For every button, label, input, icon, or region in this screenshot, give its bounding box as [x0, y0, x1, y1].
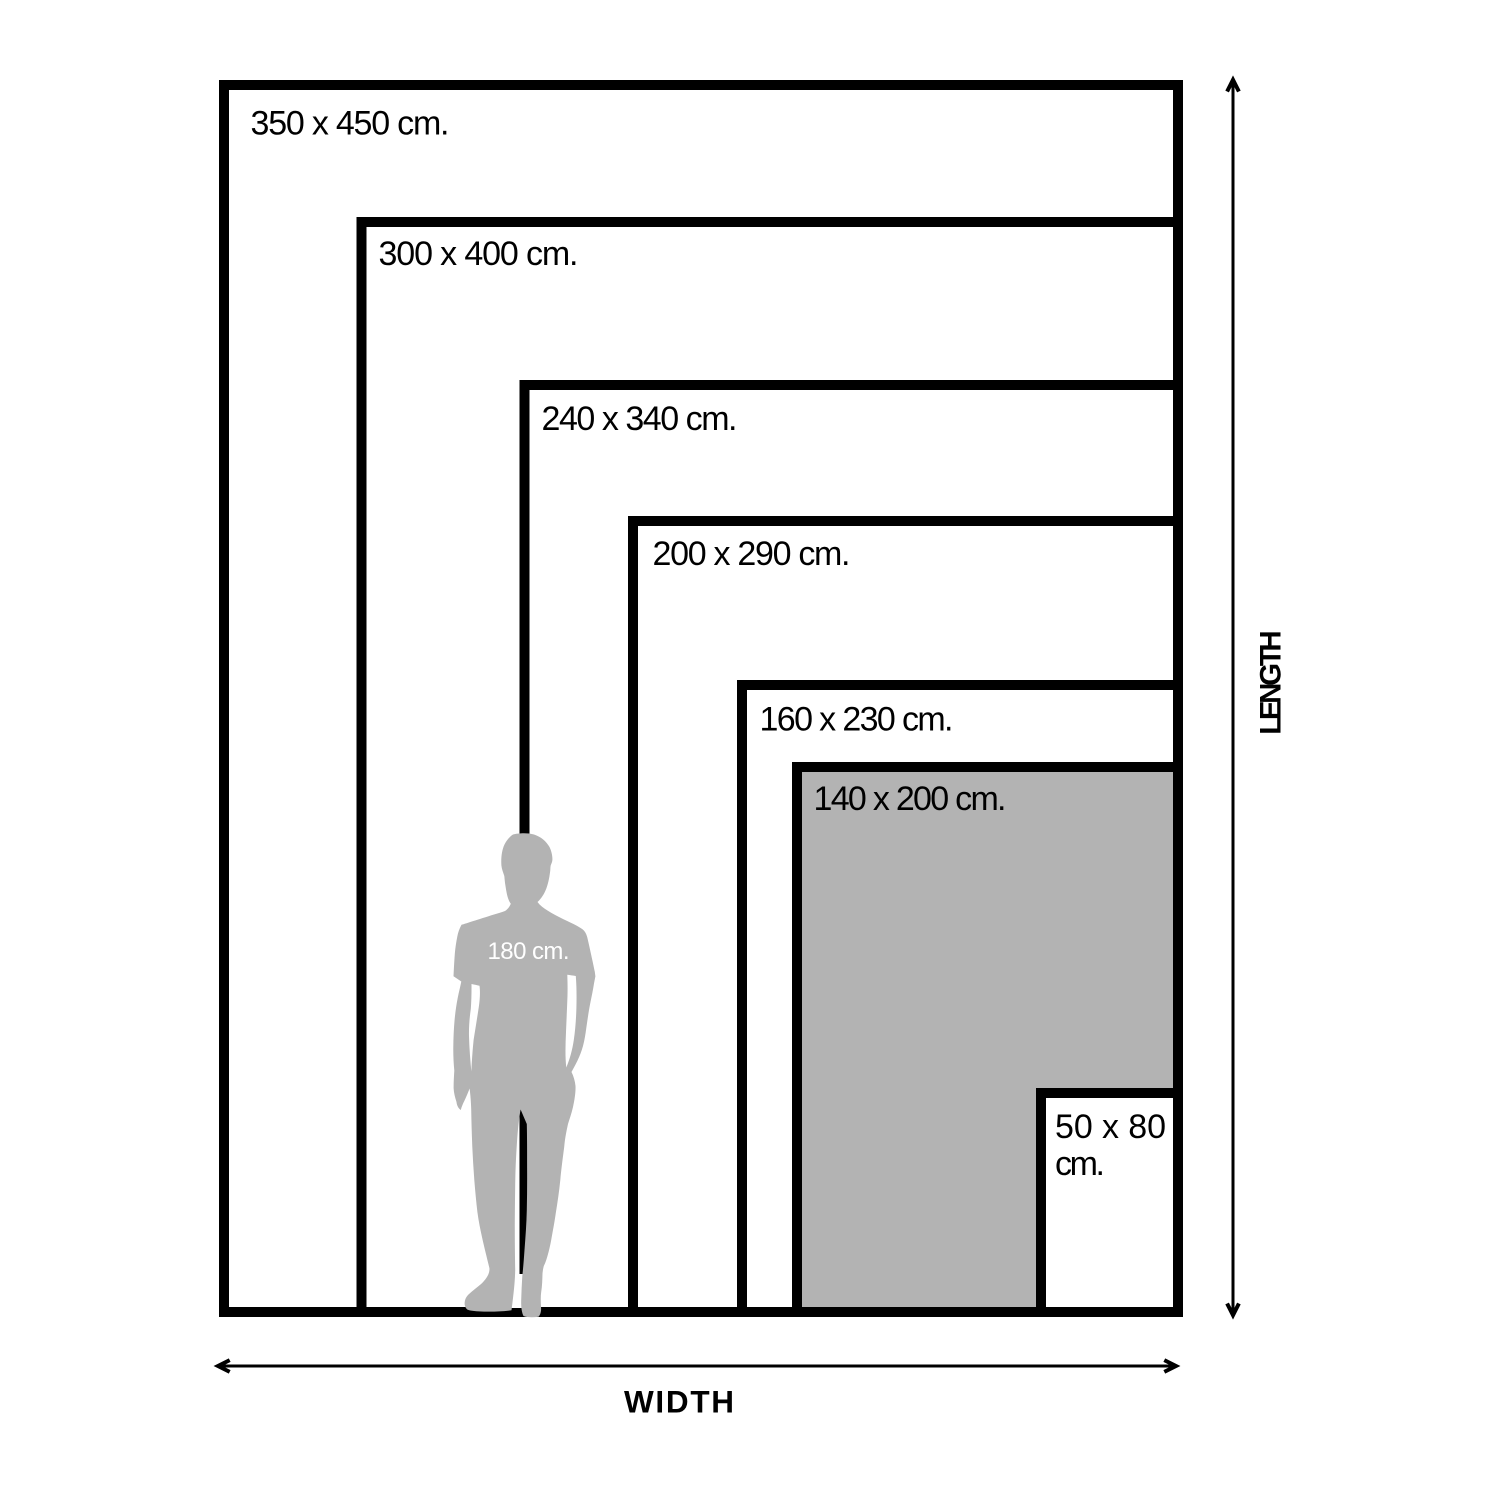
svg-text:180 cm.: 180 cm.: [488, 938, 570, 965]
svg-text:140 x 200 cm.: 140 x 200 cm.: [814, 780, 1007, 818]
svg-text:50 x 80: 50 x 80: [1055, 1108, 1166, 1146]
svg-text:cm.: cm.: [1055, 1145, 1105, 1183]
svg-text:160 x 230 cm.: 160 x 230 cm.: [760, 701, 954, 739]
svg-text:200 x 290 cm.: 200 x 290 cm.: [653, 535, 851, 573]
svg-text:300 x 400 cm.: 300 x 400 cm.: [379, 235, 579, 273]
svg-text:240 x 340 cm.: 240 x 340 cm.: [542, 400, 738, 438]
svg-text:350 x 450 cm.: 350 x 450 cm.: [251, 105, 450, 143]
svg-text:WIDTH: WIDTH: [624, 1384, 734, 1420]
svg-text:LENGTH: LENGTH: [1255, 630, 1288, 735]
